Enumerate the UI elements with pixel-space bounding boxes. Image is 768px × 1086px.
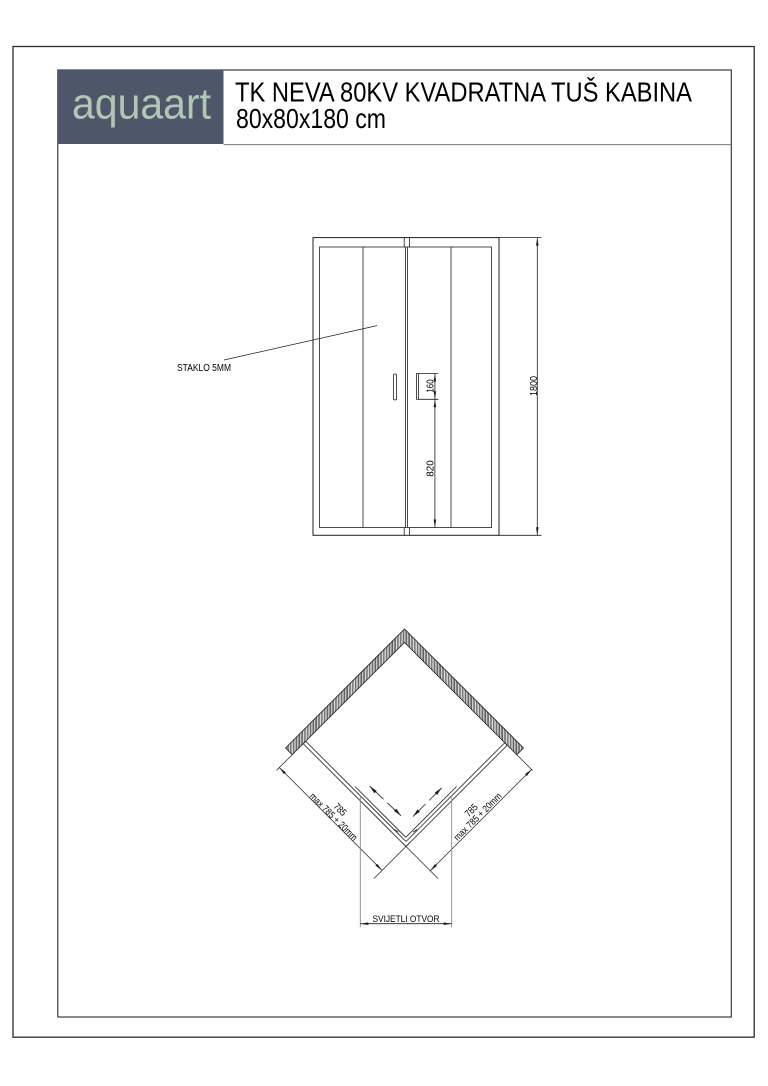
svg-text:160: 160 <box>426 379 437 393</box>
svg-text:STAKLO 5MM: STAKLO 5MM <box>177 363 231 374</box>
svg-text:SVIJETLI OTVOR: SVIJETLI OTVOR <box>373 914 440 925</box>
svg-text:1800: 1800 <box>529 376 540 396</box>
svg-text:80x80x180 cm: 80x80x180 cm <box>236 103 386 134</box>
svg-text:aquaart: aquaart <box>72 81 211 129</box>
svg-text:max 785 + 20mm: max 785 + 20mm <box>452 791 504 843</box>
svg-text:820: 820 <box>426 460 437 477</box>
svg-text:max 785 + 20mm: max 785 + 20mm <box>307 791 359 843</box>
